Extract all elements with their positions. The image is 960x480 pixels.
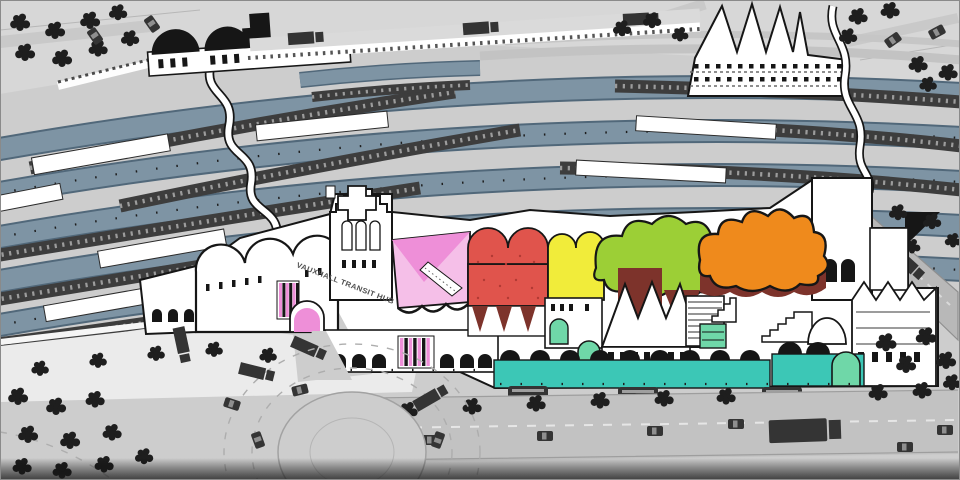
south-road [368,388,958,462]
pink-ramp-hall [392,232,470,313]
red-arch-hall [468,228,548,336]
entrance-arch [290,301,324,332]
mint-arch-b [832,352,860,386]
site-illustration: VAUXHALL TRANSIT HUB [0,0,960,480]
bottom-shadow [0,458,960,480]
tower-arched-windows [342,221,380,250]
site-illustration-canvas: VAUXHALL TRANSIT HUB [0,0,960,480]
pink-colonnade-lower [398,336,434,368]
arched-west-wing [196,236,338,332]
window-slab-building [545,298,602,348]
